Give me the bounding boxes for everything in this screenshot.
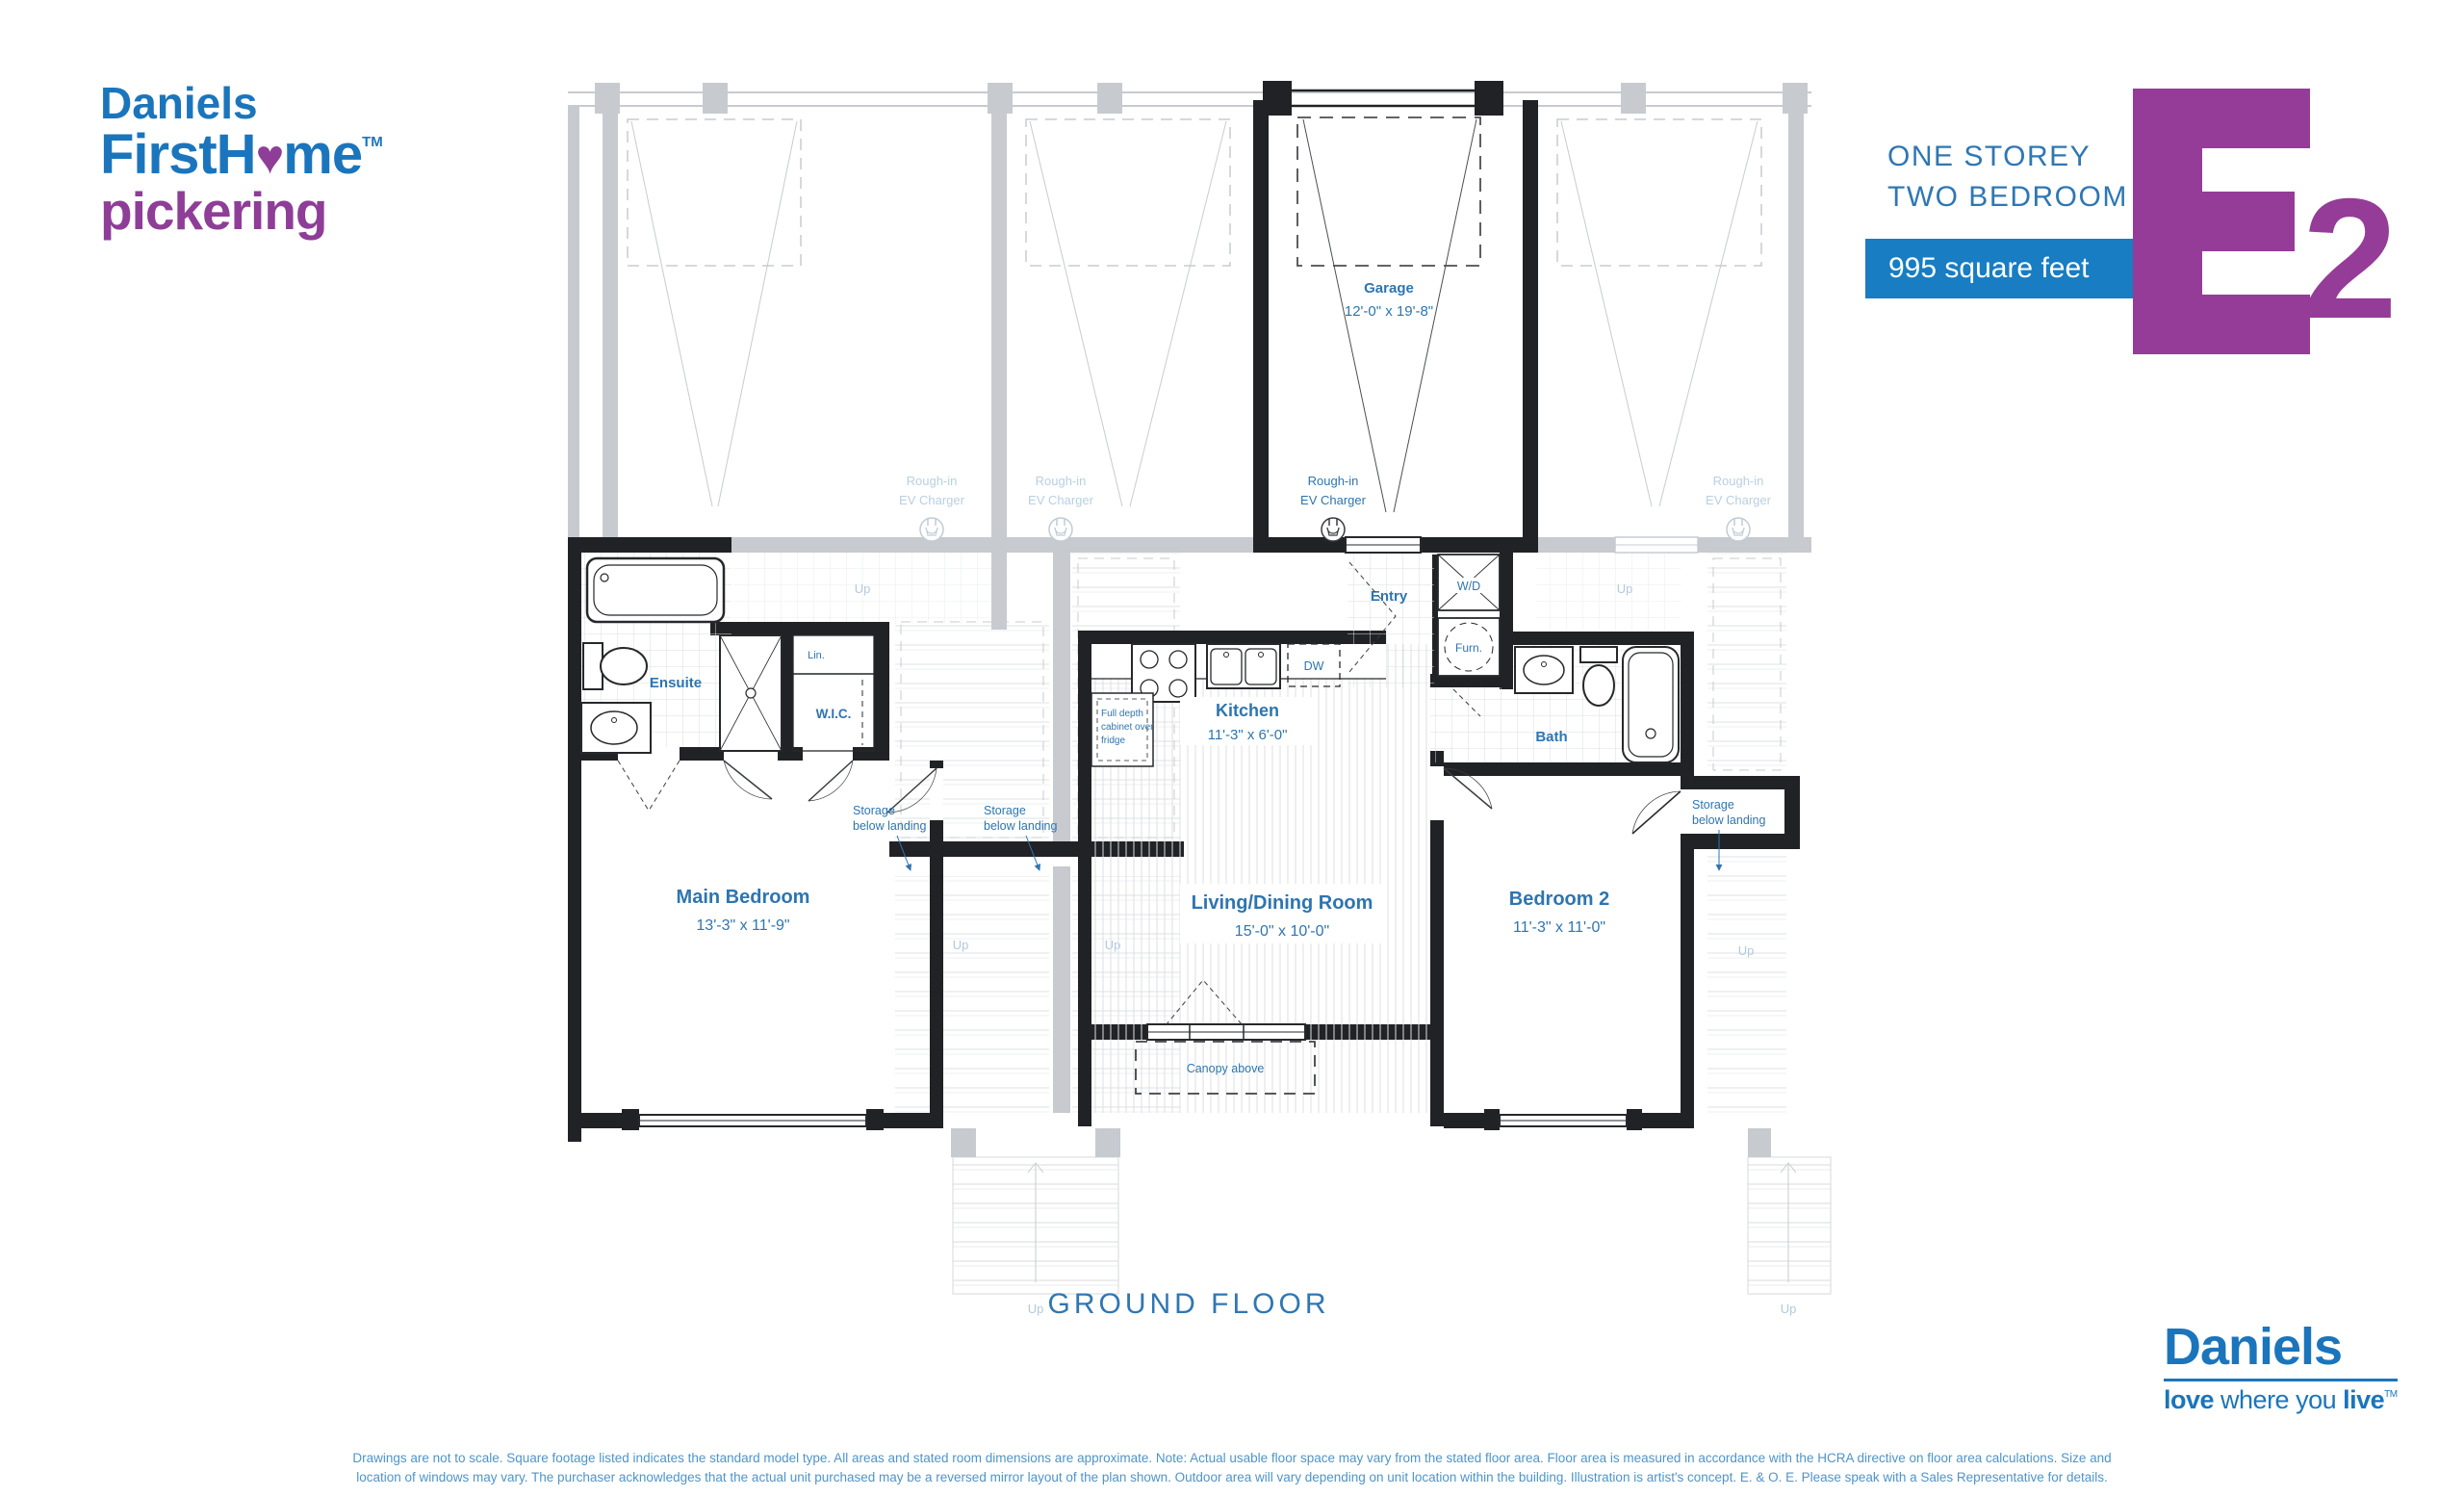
svg-text:Rough-in: Rough-in [1036, 474, 1087, 488]
bath-label: Bath [1535, 729, 1567, 745]
kitchen-label: Kitchen [1216, 701, 1279, 720]
footer-logo-tagline: love where you liveTM [2164, 1387, 2398, 1413]
svg-text:fridge: fridge [1101, 736, 1125, 746]
brand-pickering: pickering [100, 185, 383, 238]
linen-label: Lin. [808, 650, 825, 661]
ev-charger-note: Rough-in EV Charger [1300, 474, 1367, 541]
disclaimer-line2: location of windows may vary. The purcha… [318, 1468, 2146, 1487]
svg-text:Up: Up [1617, 581, 1633, 596]
svg-text:Storage: Storage [984, 804, 1026, 817]
brand-daniels: Daniels [100, 81, 383, 125]
model-number: 2 [2302, 173, 2398, 345]
svg-text:Up: Up [953, 938, 969, 952]
disclaimer: Drawings are not to scale. Square footag… [318, 1449, 2146, 1487]
main-bedroom-window [639, 1115, 866, 1126]
ev-plug-icon [1049, 518, 1072, 541]
furn-label: Furn. [1455, 641, 1482, 655]
footer-logo-name: Daniels [2164, 1321, 2398, 1373]
heart-icon: ♥ [256, 130, 284, 184]
bedroom2-label: Bedroom 2 [1509, 889, 1609, 910]
ev-plug-icon [1322, 518, 1345, 541]
canopy-label: Canopy above [1187, 1062, 1265, 1075]
svg-text:EV Charger: EV Charger [1028, 493, 1094, 507]
svg-text:Full depth: Full depth [1101, 709, 1143, 719]
ev-plug-icon [920, 518, 943, 541]
trademark: TM [362, 134, 383, 150]
living-dims: 15'-0" x 10'-0" [1235, 923, 1329, 940]
svg-text:below landing: below landing [1692, 813, 1765, 827]
main-bedroom-dims: 13'-3" x 11'-9" [696, 917, 789, 934]
garage-dims: 12'-0" x 19'-8" [1345, 303, 1433, 320]
floor-title: GROUND FLOOR [962, 1288, 1415, 1321]
living-label: Living/Dining Room [1192, 892, 1373, 914]
trademark: TM [2384, 1389, 2397, 1400]
garage-label: Garage [1364, 280, 1414, 297]
svg-text:Up: Up [1738, 943, 1755, 958]
model-letter-arm-mid [2133, 192, 2295, 251]
entry-label: Entry [1371, 588, 1408, 605]
dishwasher-label: DW [1304, 659, 1324, 673]
plan-type-line1: ONE STOREY [1887, 137, 2128, 177]
svg-text:below landing: below landing [984, 819, 1057, 833]
model-badge: 2 [2133, 89, 2393, 354]
svg-text:Up: Up [1781, 1302, 1797, 1316]
plan-type: ONE STOREY TWO BEDROOM [1887, 137, 2128, 218]
floorplan-sheet: Daniels FirstH♥meTM pickering ONE STOREY… [0, 0, 2464, 1497]
ev-plug-icon [1727, 518, 1750, 541]
footer-logo: Daniels love where you liveTM [2164, 1321, 2398, 1413]
svg-text:Up: Up [855, 581, 871, 596]
bedroom2-window [1500, 1115, 1627, 1126]
brand-logo: Daniels FirstH♥meTM pickering [100, 81, 383, 238]
model-letter-arm-bottom [2133, 295, 2310, 354]
plan-type-line2: TWO BEDROOM [1887, 177, 2128, 218]
laundry-closet [1438, 555, 1500, 676]
footer-logo-rule [2164, 1379, 2398, 1381]
brand-firsthome: FirstH♥meTM [100, 127, 383, 183]
svg-text:EV Charger: EV Charger [1300, 493, 1367, 507]
svg-text:Rough-in: Rough-in [1308, 474, 1359, 488]
wd-label: W/D [1457, 580, 1480, 593]
svg-text:cabinet over: cabinet over [1101, 722, 1154, 733]
svg-text:Storage: Storage [853, 804, 895, 817]
svg-text:Storage: Storage [1692, 798, 1734, 812]
svg-text:below landing: below landing [853, 819, 926, 833]
area-banner: 995 square feet [1865, 239, 2158, 298]
disclaimer-line1: Drawings are not to scale. Square footag… [318, 1449, 2146, 1468]
bedroom2-dims: 11'-3" x 11'-0" [1513, 919, 1605, 936]
svg-text:Rough-in: Rough-in [1713, 474, 1764, 488]
svg-text:EV Charger: EV Charger [899, 493, 965, 507]
ensuite-label: Ensuite [650, 675, 702, 691]
svg-text:EV Charger: EV Charger [1706, 493, 1772, 507]
wic-label: W.I.C. [816, 707, 852, 721]
kitchen-dims: 11'-3" x 6'-0" [1208, 727, 1288, 743]
main-bedroom-label: Main Bedroom [677, 887, 810, 908]
floor-plan-drawing: Rough-in EV Charger Rough-in EV Charger … [568, 77, 1848, 1329]
model-letter-arm-top [2133, 89, 2310, 148]
svg-text:Rough-in: Rough-in [907, 474, 958, 488]
